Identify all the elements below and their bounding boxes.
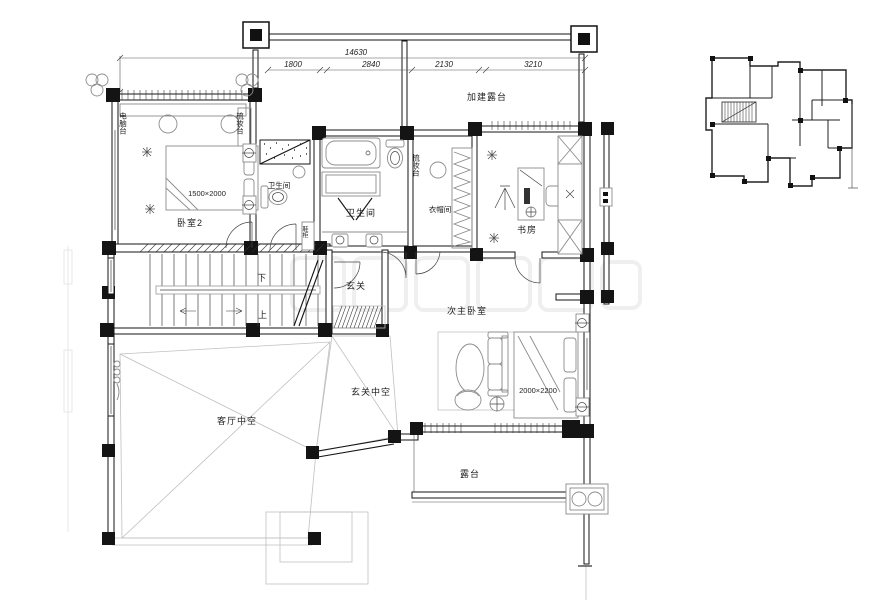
toilet-icon bbox=[386, 140, 404, 168]
plant-icon bbox=[487, 150, 497, 160]
bookshelf-icon bbox=[558, 136, 582, 254]
wall-fixture bbox=[575, 314, 589, 332]
floorplan-drawing: 14630 1800 2840 2130 3210 bbox=[0, 0, 878, 614]
column-symbol-left bbox=[243, 22, 269, 48]
dim-seg-4: 3210 bbox=[524, 60, 542, 69]
wall-fixture bbox=[242, 196, 256, 214]
dresser-cloak-label: 梳妆台 bbox=[411, 153, 420, 178]
desk-icon bbox=[518, 168, 544, 220]
dim-seg-2: 2840 bbox=[361, 60, 380, 69]
wall-fixture bbox=[600, 188, 612, 206]
dimension-lines: 14630 1800 2840 2130 3210 bbox=[117, 48, 588, 95]
sink-icon bbox=[332, 234, 348, 247]
plant-icon bbox=[489, 233, 499, 243]
dim-total: 14630 bbox=[345, 48, 368, 57]
terrace-planter bbox=[566, 484, 608, 514]
sink-icon bbox=[366, 234, 382, 247]
bath-main-label: 卫生间 bbox=[346, 207, 376, 218]
entry-area bbox=[333, 262, 385, 328]
wall-fixture bbox=[242, 144, 256, 162]
dim-seg-1: 1800 bbox=[284, 60, 302, 69]
shoe-cabinet: 鞋柜 bbox=[301, 222, 314, 250]
basin-icon bbox=[293, 166, 305, 178]
entry-label: 玄关 bbox=[346, 280, 366, 291]
side-table-icon bbox=[490, 397, 504, 411]
terrace-label: 露台 bbox=[460, 468, 480, 479]
computer-desk-label: 电脑台 bbox=[118, 111, 127, 136]
overview-mini-plan bbox=[706, 56, 858, 188]
bathtub-icon bbox=[322, 138, 380, 168]
cloak-door bbox=[416, 252, 440, 274]
stair-up-label: 上 bbox=[258, 310, 268, 320]
living-void-label: 客厅中空 bbox=[217, 415, 257, 426]
oval-table-icon bbox=[456, 344, 484, 392]
curtain-coil-icon bbox=[114, 361, 120, 400]
armchair-icon bbox=[455, 390, 481, 410]
plant-icon bbox=[142, 147, 152, 157]
dim-seg-3: 2130 bbox=[434, 60, 453, 69]
study bbox=[487, 136, 582, 283]
secondary-master-label: 次主卧室 bbox=[447, 305, 487, 316]
added-terrace-label: 加建露台 bbox=[467, 91, 507, 102]
entry-void-label: 玄关中空 bbox=[351, 386, 391, 397]
bath-small-label: 卫生间 bbox=[268, 180, 291, 190]
exterior-faint-outline bbox=[64, 246, 586, 600]
dresser-bedroom-label: 梳妆台 bbox=[235, 111, 244, 136]
bed-master bbox=[514, 332, 578, 418]
mini-stairs bbox=[722, 102, 756, 122]
tripod-lamp-icon bbox=[495, 186, 515, 210]
floorplan-canvas: 14630 1800 2840 2130 3210 bbox=[0, 0, 878, 614]
wall-fixture bbox=[575, 398, 589, 416]
study-label: 书房 bbox=[517, 224, 537, 235]
shoe-cabinet-label: 鞋柜 bbox=[301, 225, 308, 239]
column-cap-left bbox=[86, 74, 108, 96]
column-symbol-right bbox=[571, 26, 597, 52]
grid-beams bbox=[243, 22, 597, 128]
living-void bbox=[120, 342, 330, 538]
staircase: 下 上 bbox=[150, 254, 323, 326]
bedroom2-label: 卧室2 bbox=[177, 217, 203, 228]
bed2-size-label: 1500×2000 bbox=[188, 189, 226, 198]
sofa-icon bbox=[488, 332, 508, 396]
master-bed-size-label: 2000×2200 bbox=[519, 386, 557, 395]
cloakroom-label: 衣帽间 bbox=[429, 204, 452, 214]
plant-icon bbox=[145, 204, 155, 214]
stair-down-label: 下 bbox=[257, 273, 267, 283]
